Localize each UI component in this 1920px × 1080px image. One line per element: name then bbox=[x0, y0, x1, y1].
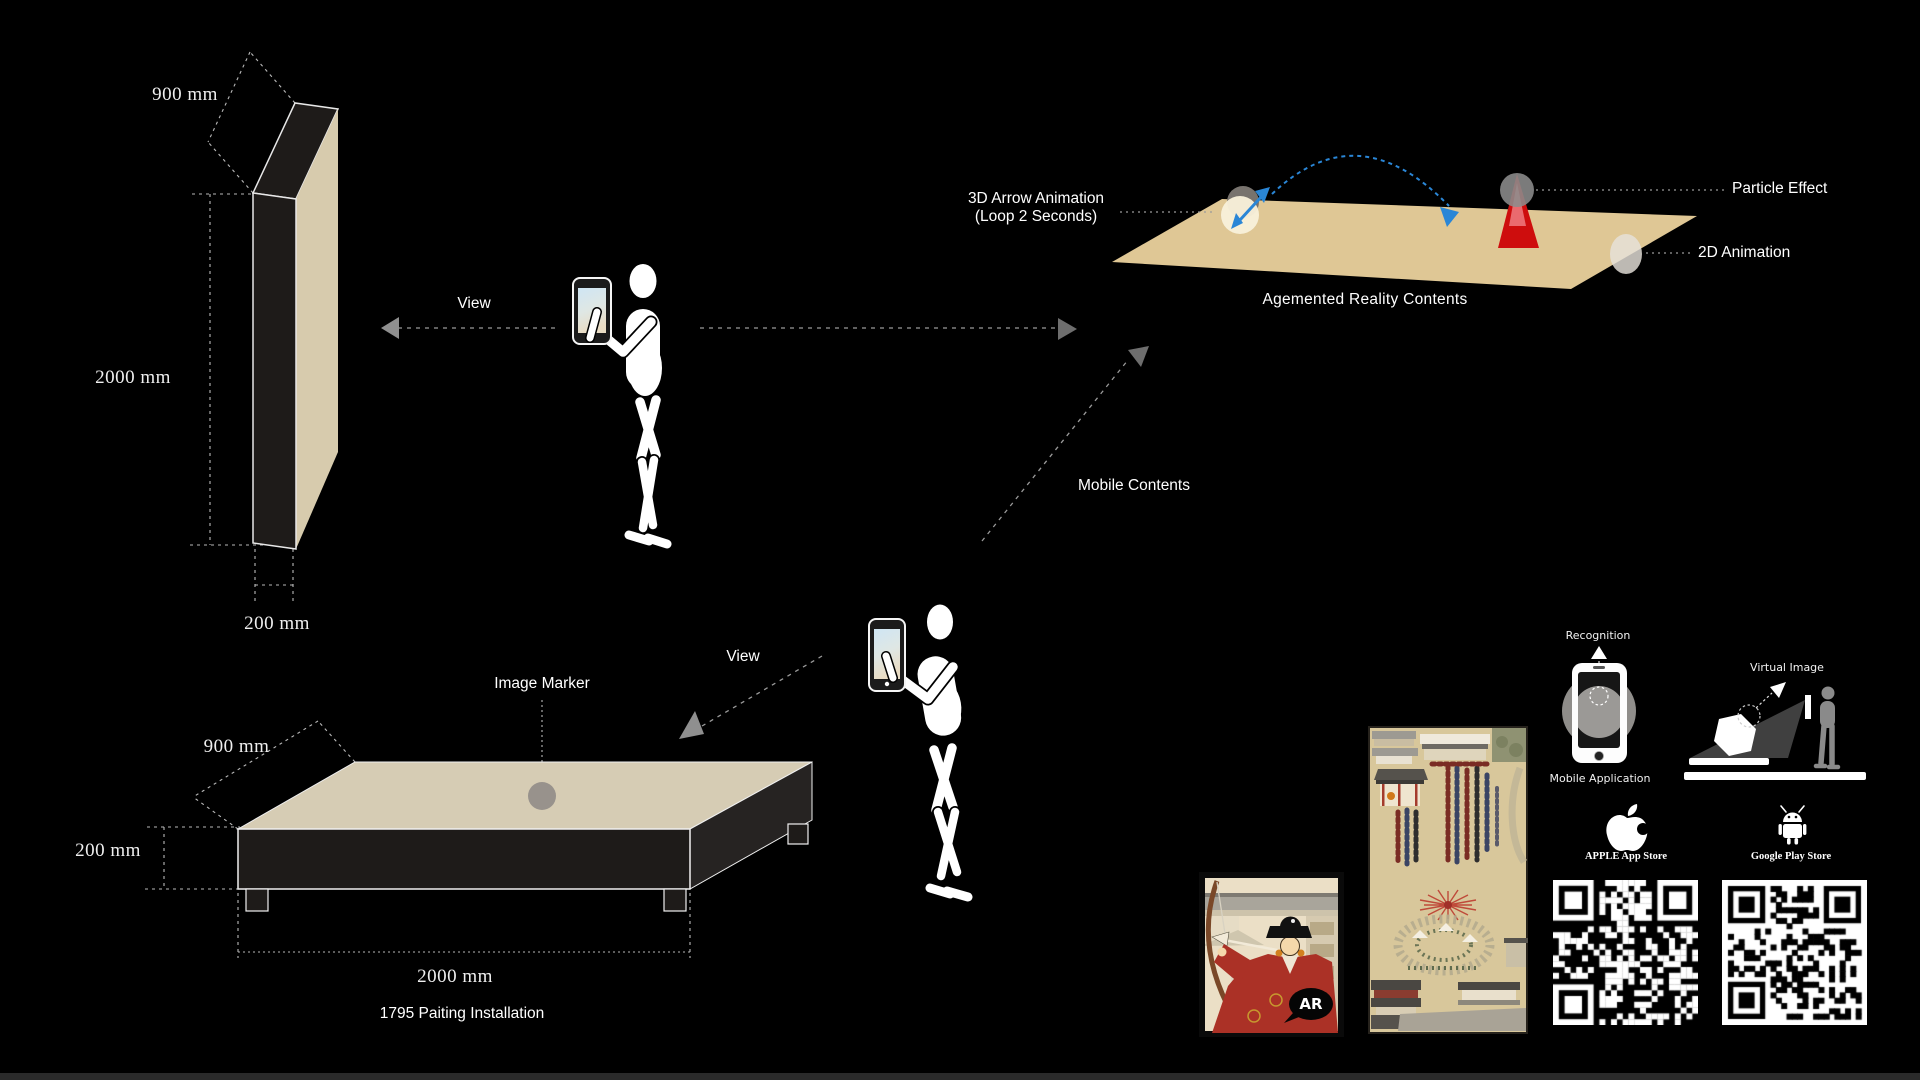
platform-foot bbox=[664, 889, 686, 911]
arrow-marker-spot bbox=[1221, 196, 1259, 234]
google-store-label: Google Play Store bbox=[1741, 851, 1841, 862]
mini-person-icon bbox=[1816, 687, 1838, 768]
panel-installation bbox=[190, 52, 338, 603]
floor-line bbox=[1684, 772, 1866, 780]
android-logo-icon bbox=[1779, 806, 1807, 845]
bottom-strip bbox=[0, 1073, 1920, 1080]
recognition-arrow-icon bbox=[1591, 646, 1607, 659]
virtual-image-arrow-icon bbox=[1770, 682, 1786, 698]
platform-width-label: 2000 mm bbox=[405, 966, 505, 988]
virtual-image-label: Virtual Image bbox=[1737, 661, 1837, 674]
installation-caption: 1795 Paiting Installation bbox=[352, 1005, 572, 1023]
person-bottom-legs bbox=[930, 748, 968, 897]
2d-animation-label: 2D Animation bbox=[1698, 244, 1790, 262]
view-top-label: View bbox=[444, 295, 504, 313]
qr-code-google-play bbox=[1722, 880, 1867, 1025]
ar-caption: Agemented Reality Contents bbox=[1254, 291, 1476, 309]
3d-arrow-animation-label: 3D Arrow Animation (Loop 2 Seconds) bbox=[955, 190, 1117, 226]
qr-code-apple-store bbox=[1553, 880, 1698, 1025]
arrowhead-downleft-icon bbox=[679, 711, 704, 739]
platform-height-label: 200 mm bbox=[68, 840, 148, 862]
panel-height-label: 2000 mm bbox=[83, 367, 183, 389]
trajectory-arc bbox=[1272, 156, 1449, 206]
image-marker-label: Image Marker bbox=[489, 675, 595, 693]
recognition-phone bbox=[1562, 646, 1636, 763]
platform-depth-label: 900 mm bbox=[194, 736, 279, 758]
view-arrows bbox=[398, 328, 1128, 726]
home-button-icon bbox=[1595, 752, 1604, 761]
apple-store-label: APPLE App Store bbox=[1576, 851, 1676, 862]
ar-contents-plane bbox=[1112, 156, 1724, 289]
mobile-contents-label: Mobile Contents bbox=[1064, 477, 1204, 495]
platform-foot bbox=[788, 824, 808, 844]
3d-arrow-line1: 3D Arrow Animation bbox=[955, 190, 1117, 208]
view-bottom-label: View bbox=[713, 648, 773, 666]
recognition-label: Recognition bbox=[1548, 629, 1648, 642]
arrowhead-left-icon bbox=[381, 317, 399, 339]
person-top-legs bbox=[629, 400, 667, 544]
arrowhead-right-icon bbox=[1058, 318, 1077, 340]
image-marker-dot bbox=[528, 782, 556, 810]
arrowhead-upright-icon bbox=[1128, 346, 1149, 367]
platform-foot bbox=[246, 889, 268, 911]
virtual-image-diagram bbox=[1684, 682, 1866, 780]
archer-face bbox=[1281, 937, 1300, 956]
person-viewer-bottom bbox=[869, 605, 968, 898]
panel-depth-label: 900 mm bbox=[143, 84, 227, 106]
panel-thickness-label: 200 mm bbox=[237, 613, 317, 635]
painting-thumbnail bbox=[1369, 727, 1528, 1033]
person-viewer-top bbox=[573, 264, 667, 544]
diagram-canvas: 900 mm 2000 mm 200 mm 900 mm 200 mm 2000… bbox=[0, 0, 1920, 1080]
ar-badge-label: AR bbox=[1291, 995, 1331, 1013]
particle-effect-label: Particle Effect bbox=[1732, 180, 1827, 198]
2d-animation-spot bbox=[1610, 234, 1642, 274]
apple-logo-icon bbox=[1606, 804, 1649, 851]
3d-arrow-line2: (Loop 2 Seconds) bbox=[955, 208, 1117, 226]
mobile-application-label: Mobile Application bbox=[1540, 772, 1660, 785]
